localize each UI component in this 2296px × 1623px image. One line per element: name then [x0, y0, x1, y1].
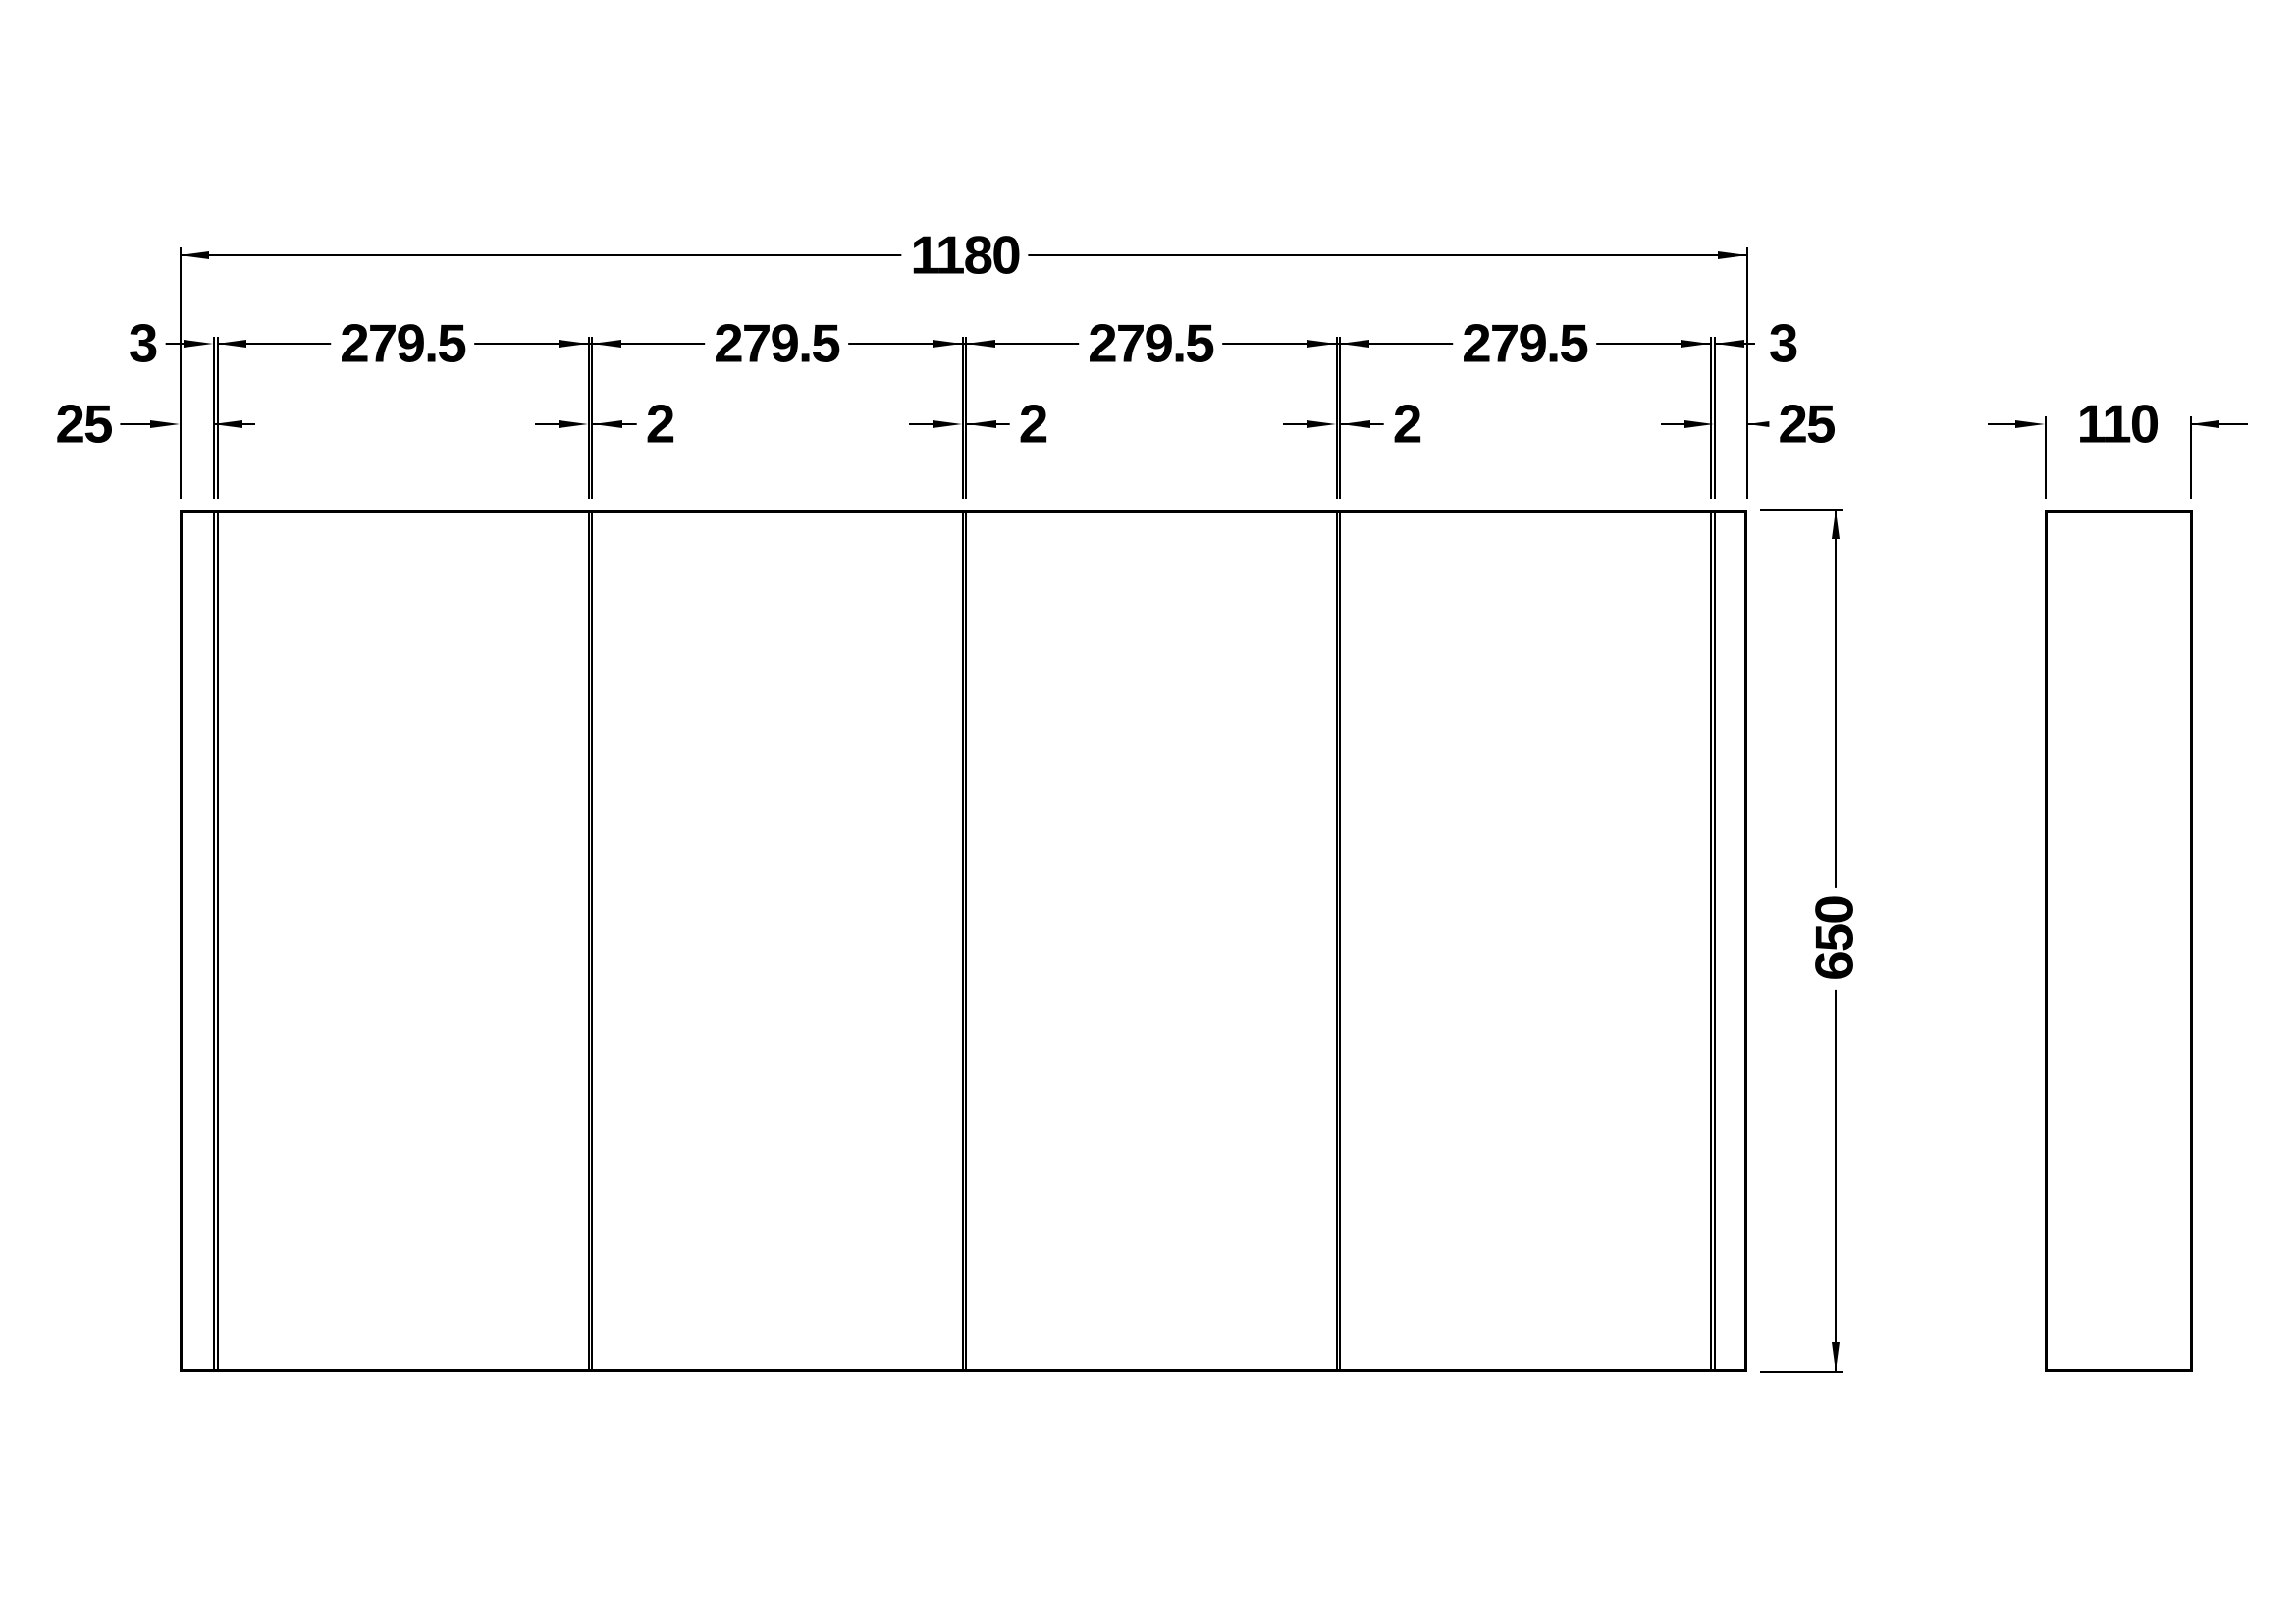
door-edge-line	[1710, 513, 1712, 1369]
arrowhead-left-icon	[180, 251, 209, 259]
arrowhead-down-icon	[1832, 1342, 1840, 1372]
arrowhead-right-icon	[933, 340, 962, 348]
arrowhead-left-icon	[1341, 420, 1370, 428]
extension-line	[2045, 416, 2047, 499]
door-edge-line	[1336, 513, 1338, 1369]
arrowhead-right-icon	[1681, 340, 1710, 348]
side-view-outline	[2045, 510, 2193, 1372]
extension-line	[1339, 337, 1341, 499]
extension-line	[962, 337, 964, 499]
arrowhead-left-icon	[217, 340, 246, 348]
arrowhead-right-icon	[150, 420, 180, 428]
dim-label-height: 650	[1808, 888, 1862, 990]
arrowhead-left-icon	[593, 420, 622, 428]
arrowhead-right-icon	[1718, 251, 1747, 259]
door-edge-line	[217, 513, 219, 1369]
arrowhead-left-icon	[592, 340, 621, 348]
arrowhead-right-icon	[933, 420, 962, 428]
extension-line	[591, 337, 593, 499]
dimension-leader-line	[909, 423, 934, 425]
door-edge-line	[965, 513, 967, 1369]
dim-label-door-gap-3: 2	[1384, 398, 1430, 452]
arrowhead-up-icon	[1832, 510, 1840, 539]
extension-line	[1336, 337, 1338, 499]
arrowhead-left-icon	[2190, 420, 2219, 428]
dim-label-end-gap-right: 3	[1760, 317, 1806, 371]
arrowhead-right-icon	[2015, 420, 2045, 428]
extension-line	[213, 337, 215, 499]
dim-label-door-gap-2: 2	[1010, 398, 1056, 452]
arrowhead-right-icon	[559, 340, 588, 348]
extension-line	[1714, 337, 1716, 499]
dim-label-side-inset-left: 25	[46, 398, 120, 452]
dimension-leader-line	[535, 423, 560, 425]
dimension-leader-line	[1988, 423, 2016, 425]
drawing-canvas: 1180 3 279.5 279.5 279.5 279.5 3 25 2 2 …	[0, 0, 2296, 1623]
dim-label-door-width-2: 279.5	[705, 317, 848, 371]
arrowhead-right-icon	[184, 340, 213, 348]
arrowhead-left-icon	[213, 420, 242, 428]
door-edge-line	[1714, 513, 1716, 1369]
dimension-leader-line	[116, 423, 152, 425]
dim-label-depth: 110	[2068, 398, 2167, 452]
extension-line	[2190, 416, 2192, 499]
door-edge-line	[962, 513, 964, 1369]
arrowhead-left-icon	[1340, 340, 1369, 348]
door-edge-line	[1339, 513, 1341, 1369]
arrowhead-left-icon	[1715, 340, 1744, 348]
door-edge-line	[588, 513, 590, 1369]
arrowhead-left-icon	[966, 340, 995, 348]
extension-line	[217, 337, 219, 499]
extension-line	[180, 247, 182, 499]
dim-label-door-width-1: 279.5	[331, 317, 474, 371]
extension-line	[588, 337, 590, 499]
arrowhead-right-icon	[1684, 420, 1714, 428]
dimension-leader-line	[1661, 423, 1685, 425]
dim-label-end-gap-left: 3	[120, 317, 166, 371]
arrowhead-right-icon	[1307, 340, 1336, 348]
door-edge-line	[591, 513, 593, 1369]
arrowhead-right-icon	[559, 420, 588, 428]
extension-line	[1710, 337, 1712, 499]
dim-label-total-width: 1180	[901, 229, 1028, 283]
dim-label-side-inset-right: 25	[1769, 398, 1842, 452]
extension-line	[965, 337, 967, 499]
door-edge-line	[213, 513, 215, 1369]
arrowhead-left-icon	[967, 420, 996, 428]
dim-label-door-width-4: 279.5	[1453, 317, 1596, 371]
dim-label-door-gap-1: 2	[637, 398, 683, 452]
dimension-leader-line	[1283, 423, 1308, 425]
dim-label-door-width-3: 279.5	[1079, 317, 1222, 371]
arrowhead-right-icon	[1307, 420, 1336, 428]
extension-line	[1746, 247, 1748, 499]
